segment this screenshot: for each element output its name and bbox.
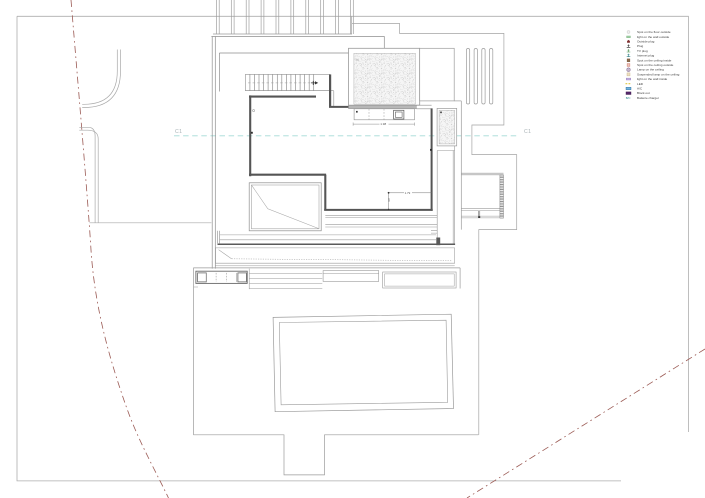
svg-text:Spot on the floor outside: Spot on the floor outside: [637, 30, 671, 34]
svg-text:1.79: 1.79: [405, 191, 411, 195]
svg-text:Suspended lamp on the ceiling: Suspended lamp on the ceiling: [637, 72, 680, 76]
svg-text:B/C: B/C: [626, 96, 631, 100]
svg-text:light on the wall outside: light on the wall outside: [637, 35, 669, 39]
svg-text:Spot on the ceiling outside: Spot on the ceiling outside: [637, 63, 674, 67]
svg-text:Outside plug: Outside plug: [637, 40, 655, 44]
svg-text:light on the wall inside: light on the wall inside: [637, 77, 668, 81]
svg-text:A/C: A/C: [637, 87, 643, 91]
svg-text:Plug: Plug: [637, 44, 643, 48]
svg-text:LED: LED: [637, 82, 644, 86]
svg-text:D.: D.: [357, 58, 360, 62]
svg-text:Spot on the ceiling inside: Spot on the ceiling inside: [637, 58, 672, 62]
svg-text:C1: C1: [524, 129, 531, 135]
svg-text:Batterie charger: Batterie charger: [637, 96, 659, 100]
svg-text:TV plug: TV plug: [637, 49, 648, 53]
svg-text:Block out: Block out: [637, 91, 650, 95]
svg-text:C1: C1: [175, 129, 182, 135]
svg-text:Internet plug: Internet plug: [637, 54, 654, 58]
svg-text:1.98: 1.98: [380, 122, 386, 126]
svg-text:Lamp on the ceiling: Lamp on the ceiling: [637, 68, 664, 72]
